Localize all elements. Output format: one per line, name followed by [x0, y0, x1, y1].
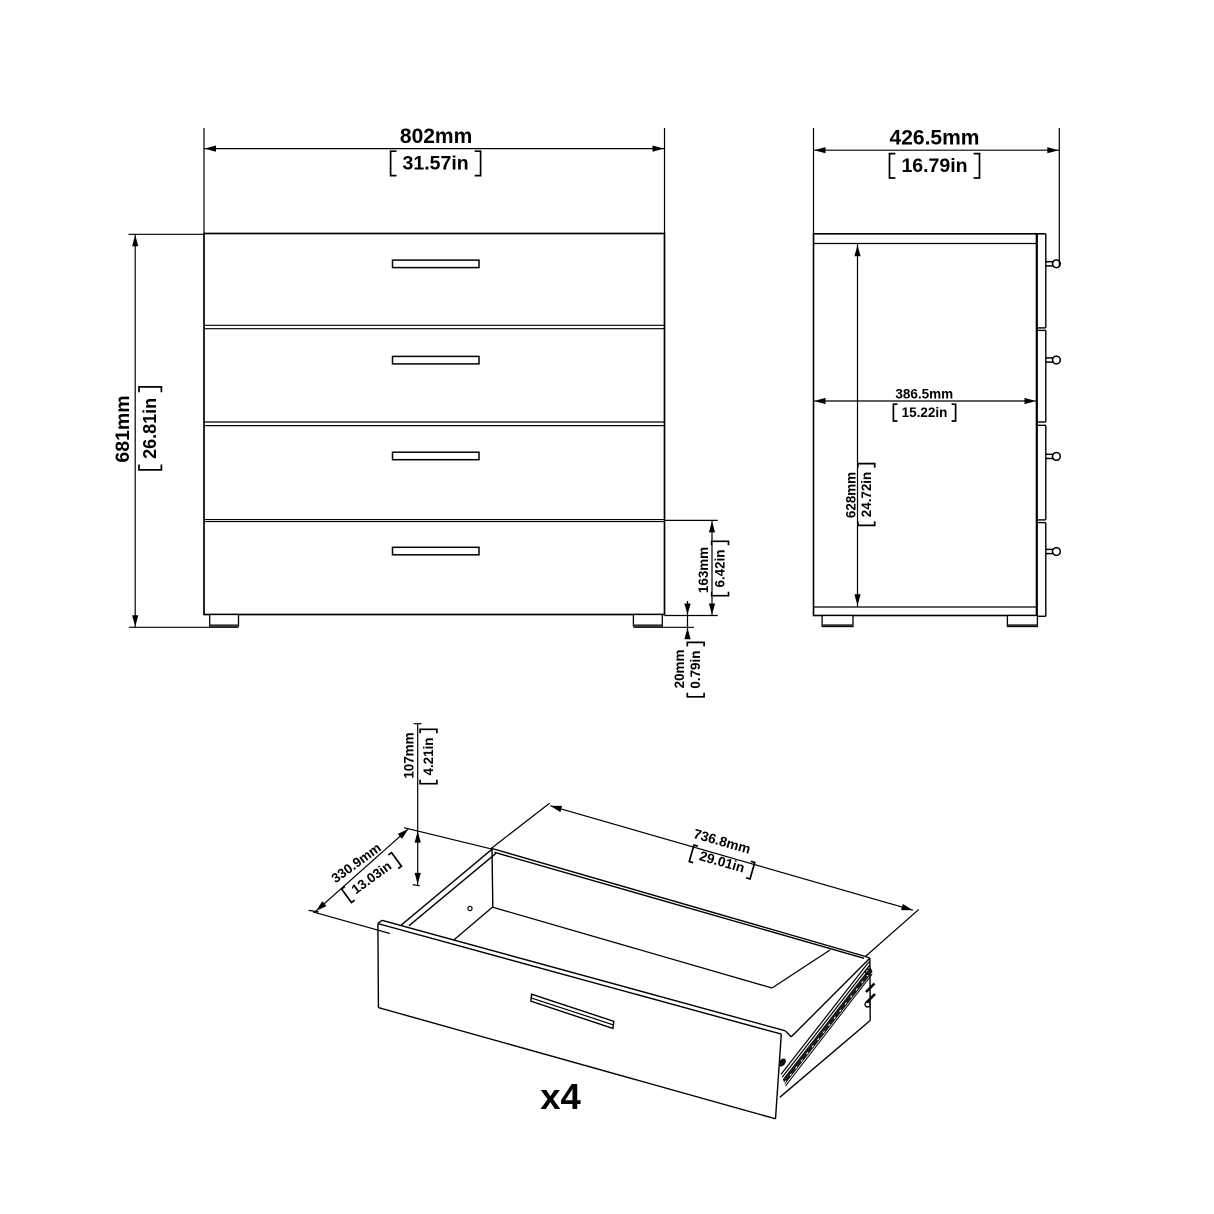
svg-text:0.79in: 0.79in: [688, 651, 703, 689]
svg-text:31.57in: 31.57in: [403, 152, 469, 174]
svg-text:24.72in: 24.72in: [859, 472, 874, 517]
svg-text:4.21in: 4.21in: [421, 738, 436, 776]
svg-text:107mm: 107mm: [402, 732, 417, 778]
svg-text:426.5mm: 426.5mm: [890, 127, 980, 150]
svg-text:26.81in: 26.81in: [140, 398, 160, 459]
svg-text:15.22in: 15.22in: [902, 405, 948, 420]
svg-text:802mm: 802mm: [400, 125, 472, 148]
svg-text:628mm: 628mm: [844, 472, 859, 518]
svg-text:681mm: 681mm: [112, 395, 134, 462]
svg-text:16.79in: 16.79in: [901, 155, 967, 177]
svg-text:6.42in: 6.42in: [713, 550, 728, 588]
svg-text:386.5mm: 386.5mm: [895, 387, 953, 402]
svg-text:x4: x4: [540, 1076, 581, 1117]
svg-text:163mm: 163mm: [696, 547, 711, 593]
svg-text:20mm: 20mm: [672, 650, 687, 689]
